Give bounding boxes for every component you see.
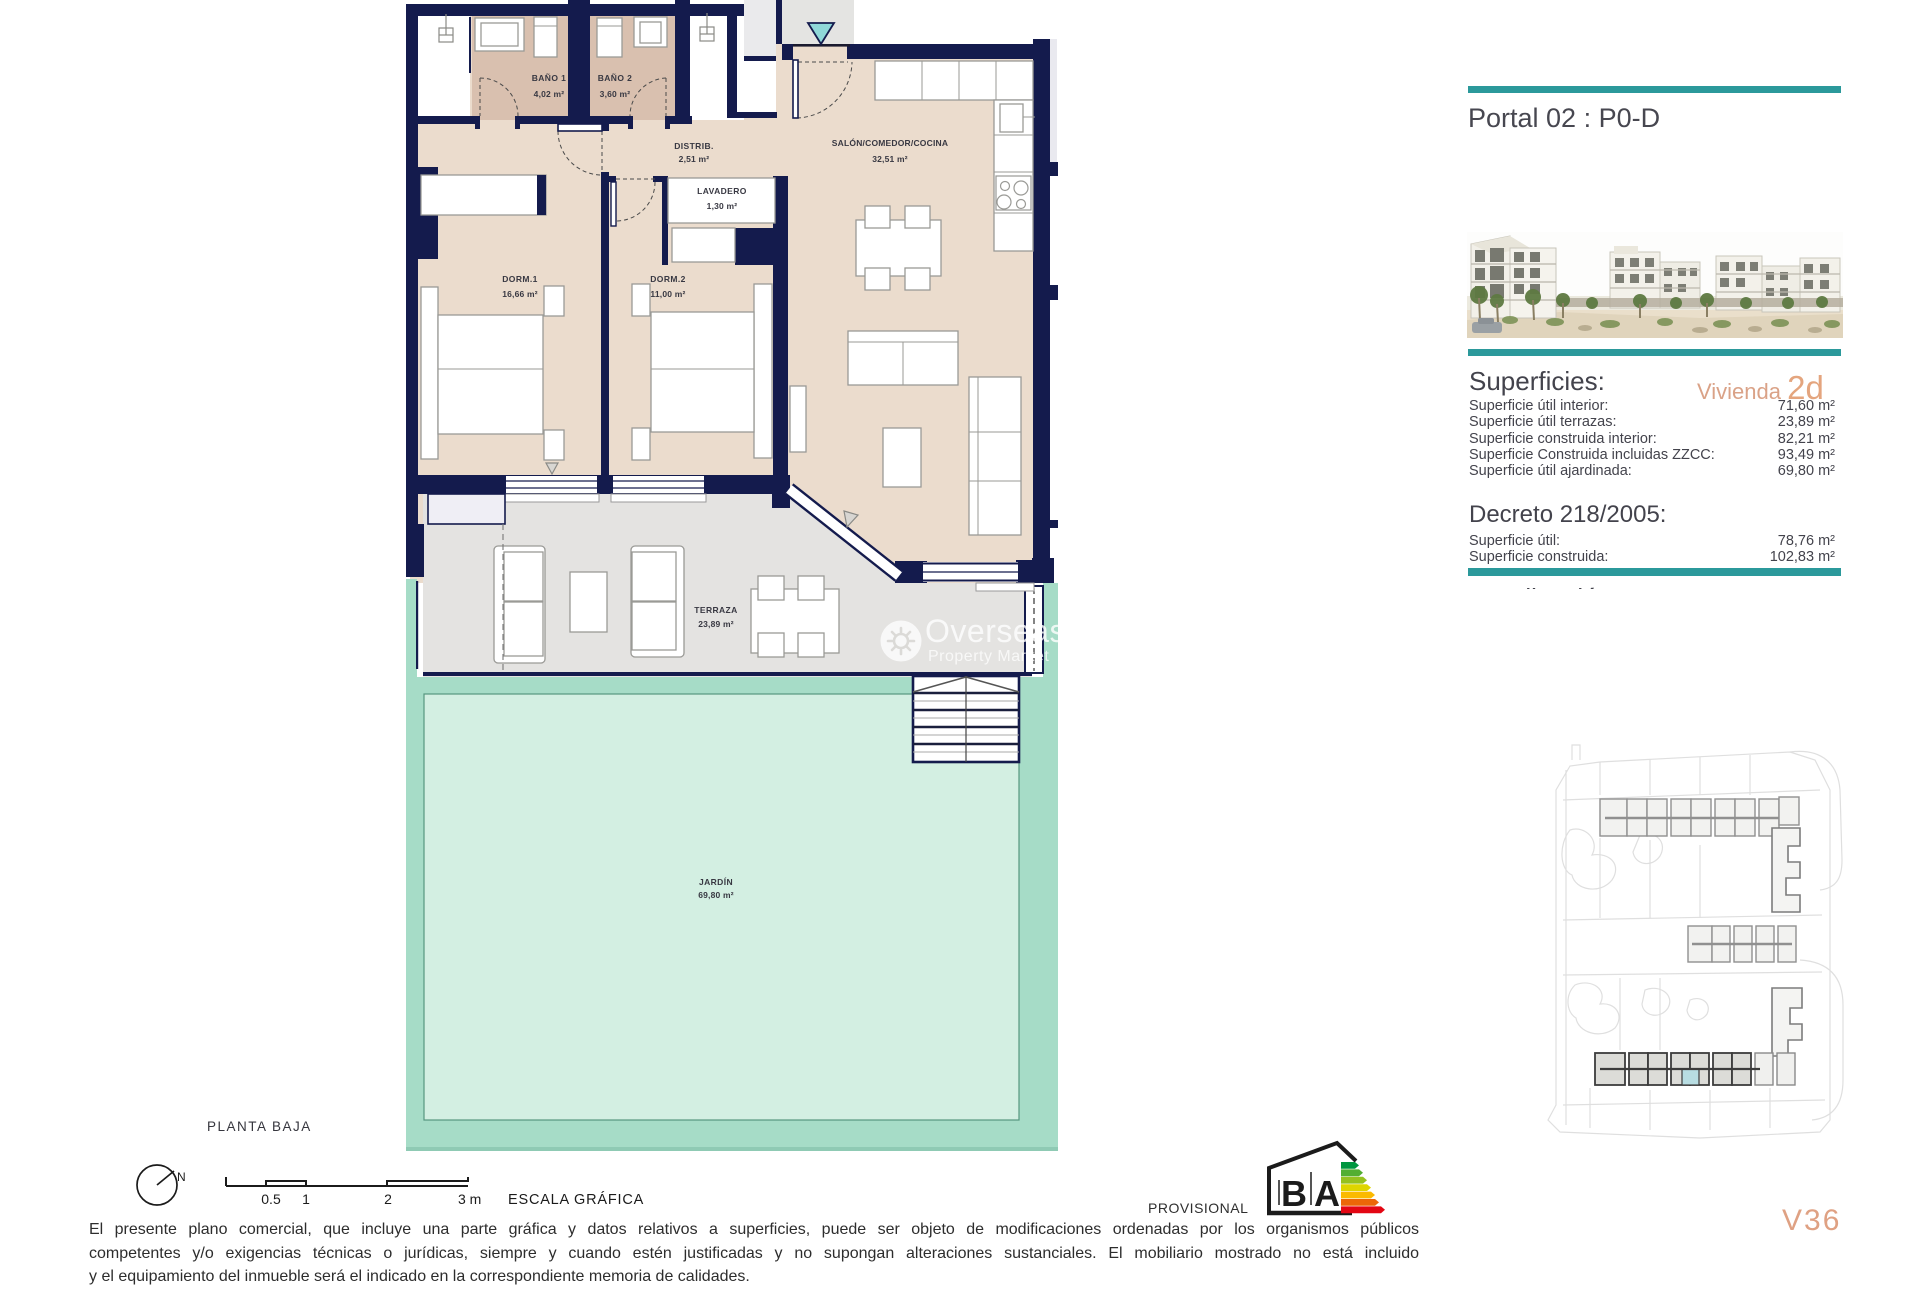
- svg-text:LAVADERO: LAVADERO: [697, 186, 747, 196]
- svg-text:SALÓN/COMEDOR/COCINA: SALÓN/COMEDOR/COCINA: [832, 137, 948, 148]
- svg-text:B: B: [1281, 1173, 1307, 1214]
- svg-text:11,00 m²: 11,00 m²: [650, 289, 685, 299]
- svg-text:TERRAZA: TERRAZA: [694, 605, 737, 615]
- svg-text:23,89 m²: 23,89 m²: [698, 619, 734, 629]
- svg-text:BAÑO 1: BAÑO 1: [532, 73, 567, 83]
- svg-text:4,02 m²: 4,02 m²: [534, 89, 565, 99]
- svg-text:2: 2: [384, 1191, 392, 1207]
- svg-text:DISTRIB.: DISTRIB.: [674, 141, 714, 151]
- svg-text:Overseas: Overseas: [925, 613, 1066, 649]
- svg-text:JARDÍN: JARDÍN: [699, 877, 733, 887]
- svg-text:0.5: 0.5: [261, 1191, 281, 1207]
- svg-text:Property Market: Property Market: [928, 648, 1049, 665]
- svg-text:69,80 m²: 69,80 m²: [698, 890, 734, 900]
- svg-text:1: 1: [302, 1191, 310, 1207]
- svg-text:3,60 m²: 3,60 m²: [600, 89, 631, 99]
- svg-text:32,51 m²: 32,51 m²: [872, 154, 908, 164]
- svg-text:1,30 m²: 1,30 m²: [707, 201, 738, 211]
- svg-text:A: A: [1314, 1173, 1340, 1214]
- svg-text:3 m: 3 m: [458, 1191, 481, 1207]
- svg-text:ESCALA GRÁFICA: ESCALA GRÁFICA: [508, 1191, 644, 1208]
- svg-text:16,66 m²: 16,66 m²: [502, 289, 538, 299]
- svg-text:DORM.2: DORM.2: [650, 274, 685, 284]
- svg-text:DORM.1: DORM.1: [502, 274, 537, 284]
- svg-text:2,51 m²: 2,51 m²: [679, 154, 710, 164]
- svg-text:BAÑO 2: BAÑO 2: [598, 73, 633, 83]
- svg-text:N: N: [177, 1170, 186, 1184]
